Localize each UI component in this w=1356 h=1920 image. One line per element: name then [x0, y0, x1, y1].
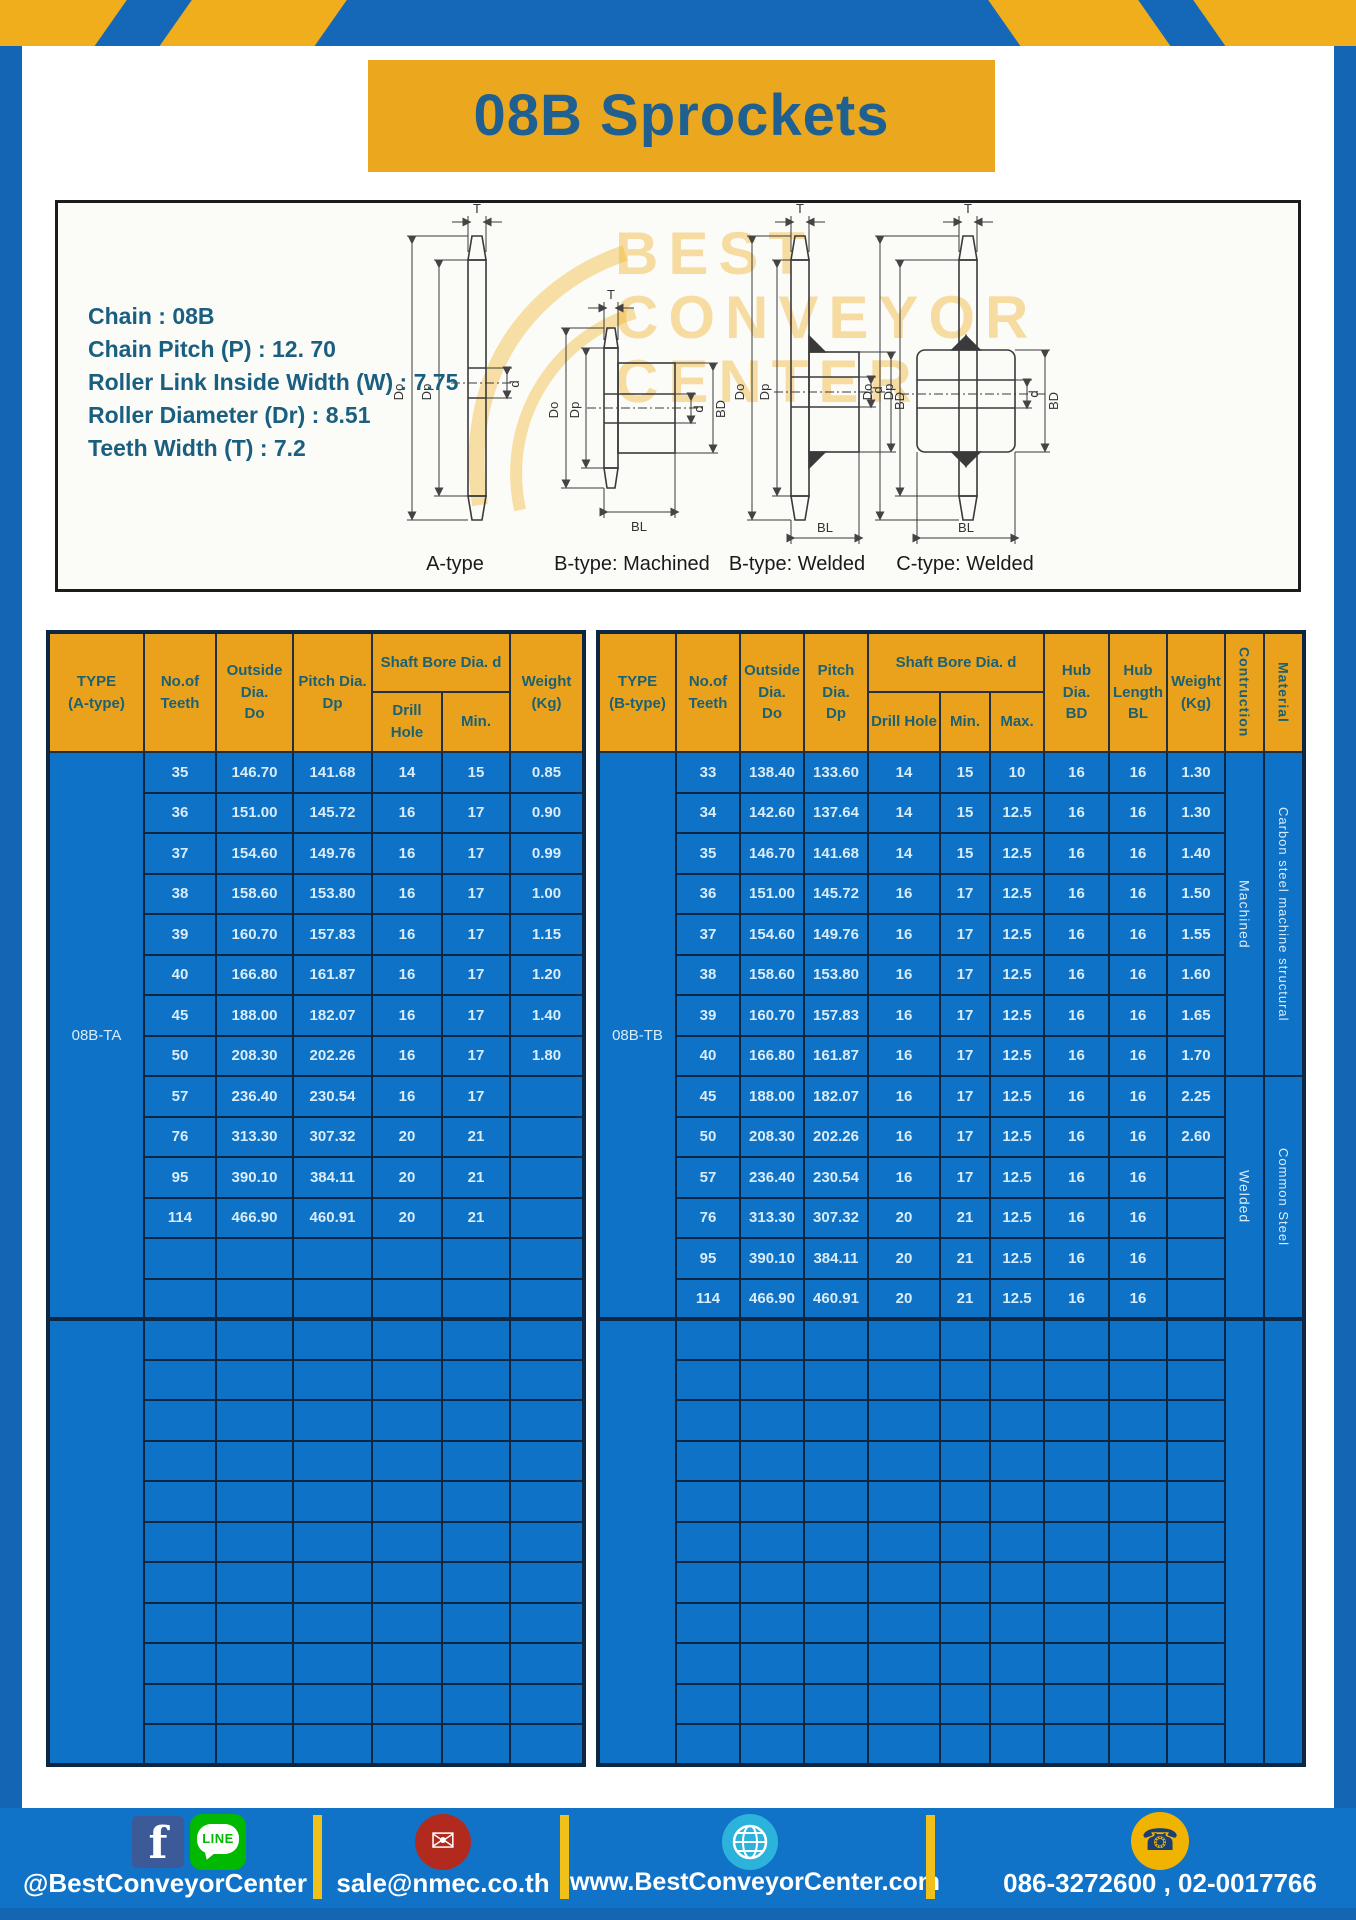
svg-text:Dp: Dp [881, 384, 896, 401]
type-cell-empty [48, 1319, 144, 1765]
material-cell-empty [1264, 1319, 1304, 1765]
table-cell [1044, 1400, 1109, 1441]
table-cell: 16 [1109, 914, 1167, 955]
table-cell [372, 1562, 442, 1603]
table-cell: 16 [868, 874, 940, 915]
table-cell: 1.40 [510, 995, 584, 1036]
table-cell [144, 1319, 216, 1360]
table-cell [868, 1562, 940, 1603]
table-cell [442, 1400, 510, 1441]
table-cell: 15 [940, 833, 990, 874]
footer-email: sale@nmec.co.th [320, 1868, 566, 1900]
svg-text:d: d [691, 405, 706, 412]
table-cell: 16 [372, 833, 442, 874]
footer-divider [560, 1815, 569, 1899]
line-bubble-label: LINE [197, 1824, 239, 1854]
table-cell: 40 [144, 955, 216, 996]
table-cell: 16 [1109, 1238, 1167, 1279]
table-cell [1044, 1360, 1109, 1401]
header-cell: Hub Dia. BD [1044, 632, 1109, 752]
footer-bar: f LINE @BestConveyorCenter ✉ sale@nmec.c… [0, 1808, 1356, 1908]
table-cell: 95 [676, 1238, 740, 1279]
table-cell [216, 1522, 293, 1563]
table-cell: 35 [676, 833, 740, 874]
svg-text:T: T [473, 201, 481, 216]
table-cell [676, 1400, 740, 1441]
table-cell: 307.32 [804, 1198, 868, 1239]
table-cell: 17 [940, 1117, 990, 1158]
table-cell: 16 [1044, 793, 1109, 834]
table-cell: 21 [940, 1198, 990, 1239]
table-cell [442, 1522, 510, 1563]
table-cell [216, 1319, 293, 1360]
table-cell: 202.26 [804, 1117, 868, 1158]
table-cell: 14 [868, 833, 940, 874]
top-band [0, 0, 1356, 46]
header-cell: Shaft Bore Dia. d [868, 632, 1044, 692]
header-cell: Weight (Kg) [1167, 632, 1225, 752]
table-cell: 161.87 [804, 1036, 868, 1077]
table-cell: 1.30 [1167, 793, 1225, 834]
table-cell [293, 1238, 372, 1279]
table-cell: 16 [1044, 995, 1109, 1036]
table-cell: 16 [372, 874, 442, 915]
table-cell [676, 1643, 740, 1684]
table-cell: 384.11 [293, 1157, 372, 1198]
table-cell: 182.07 [804, 1076, 868, 1117]
table-cell: 307.32 [293, 1117, 372, 1158]
table-cell [442, 1643, 510, 1684]
table-cell: 17 [442, 833, 510, 874]
table-cell [1167, 1400, 1225, 1441]
table-cell [940, 1522, 990, 1563]
table-cell: 157.83 [293, 914, 372, 955]
table-cell: 153.80 [804, 955, 868, 996]
table-cell [216, 1400, 293, 1441]
table-cell: 33 [676, 752, 740, 793]
table-cell [868, 1400, 940, 1441]
table-cell: 149.76 [804, 914, 868, 955]
table-cell: 12.5 [990, 1198, 1044, 1239]
table-cell: 460.91 [804, 1279, 868, 1320]
table-cell [442, 1441, 510, 1482]
table-cell: 17 [940, 955, 990, 996]
table-cell: 17 [940, 874, 990, 915]
svg-text:Do: Do [546, 402, 561, 419]
table-cell [372, 1360, 442, 1401]
table-cell [293, 1522, 372, 1563]
table-cell [868, 1684, 940, 1725]
table-cell: 0.90 [510, 793, 584, 834]
table-cell [442, 1562, 510, 1603]
svg-text:BL: BL [817, 520, 833, 535]
table-cell [293, 1481, 372, 1522]
table-cell: 45 [144, 995, 216, 1036]
globe-icon [722, 1814, 778, 1870]
table-cell [372, 1684, 442, 1725]
table-cell [868, 1319, 940, 1360]
table-cell: 16 [1044, 1238, 1109, 1279]
table-cell [144, 1562, 216, 1603]
table-cell [293, 1279, 372, 1320]
table-cell [990, 1603, 1044, 1644]
table-cell [372, 1603, 442, 1644]
table-cell: 17 [442, 1036, 510, 1077]
table-cell: 141.68 [804, 833, 868, 874]
footer-phones: 086-3272600 , 02-0017766 [985, 1868, 1335, 1900]
table-cell [1167, 1198, 1225, 1239]
table-cell [216, 1724, 293, 1765]
table-cell: 16 [372, 1076, 442, 1117]
table-cell: 12.5 [990, 955, 1044, 996]
table-cell [676, 1481, 740, 1522]
table-cell [990, 1724, 1044, 1765]
table-cell: 20 [372, 1157, 442, 1198]
table-cell: 12.5 [990, 833, 1044, 874]
header-cell: Shaft Bore Dia. d [372, 632, 510, 692]
header-cell: Min. [442, 692, 510, 752]
table-cell: 21 [442, 1117, 510, 1158]
table-cell [1109, 1643, 1167, 1684]
table-cell [1109, 1360, 1167, 1401]
table-cell: 146.70 [216, 752, 293, 793]
table-cell: 313.30 [740, 1198, 804, 1239]
svg-text:BD: BD [1046, 392, 1061, 410]
table-cell: 151.00 [740, 874, 804, 915]
table-cell: 137.64 [804, 793, 868, 834]
header-cell: Min. [940, 692, 990, 752]
table-cell: 21 [442, 1157, 510, 1198]
table-cell: 460.91 [293, 1198, 372, 1239]
page-canvas: 08B Sprockets BEST CONVEYOR CENTER [0, 0, 1356, 1920]
table-cell: 133.60 [804, 752, 868, 793]
table-cell: 16 [868, 955, 940, 996]
table-cell [144, 1360, 216, 1401]
table-cell [1167, 1360, 1225, 1401]
material-cell: Carbon steel machine structural [1264, 752, 1304, 1076]
table-cell [510, 1643, 584, 1684]
header-cell: Drill Hole [868, 692, 940, 752]
table-cell: 17 [940, 1036, 990, 1077]
table-cell: 114 [676, 1279, 740, 1320]
table-cell [868, 1441, 940, 1482]
table-cell: 45 [676, 1076, 740, 1117]
table-cell: 16 [1044, 1076, 1109, 1117]
table-cell [868, 1360, 940, 1401]
header-cell: Outside Dia. Do [740, 632, 804, 752]
table-cell: 182.07 [293, 995, 372, 1036]
table-cell: 16 [1044, 1117, 1109, 1158]
table-cell: 0.85 [510, 752, 584, 793]
table-cell [442, 1360, 510, 1401]
table-cell: 16 [1044, 752, 1109, 793]
table-cell [1109, 1400, 1167, 1441]
header-cell: Hub Length BL [1109, 632, 1167, 752]
table-cell [216, 1360, 293, 1401]
table-cell: 160.70 [216, 914, 293, 955]
table-cell: 17 [442, 793, 510, 834]
table-cell: 12.5 [990, 1117, 1044, 1158]
table-cell [740, 1360, 804, 1401]
table-cell: 1.55 [1167, 914, 1225, 955]
table-cell [510, 1360, 584, 1401]
table-cell [1044, 1643, 1109, 1684]
table-cell [676, 1724, 740, 1765]
construction-cell: Machined [1225, 752, 1264, 1076]
table-cell: 230.54 [293, 1076, 372, 1117]
table-cell: 1.50 [1167, 874, 1225, 915]
table-cell: 0.99 [510, 833, 584, 874]
table-cell [990, 1684, 1044, 1725]
table-cell: 12.5 [990, 1157, 1044, 1198]
line-icon: LINE [190, 1814, 246, 1870]
table-cell [293, 1603, 372, 1644]
table-cell: 16 [1044, 1157, 1109, 1198]
table-cell [442, 1238, 510, 1279]
table-cell: 16 [1109, 1076, 1167, 1117]
spec-line: Roller Diameter (Dr) : 8.51 [88, 399, 458, 432]
svg-text:T: T [964, 201, 972, 216]
table-cell [676, 1522, 740, 1563]
construction-cell: Welded [1225, 1076, 1264, 1319]
table-cell [144, 1603, 216, 1644]
phone-icon: ☎ [1131, 1812, 1189, 1870]
table-cell [740, 1724, 804, 1765]
table-cell [144, 1400, 216, 1441]
table-cell: 35 [144, 752, 216, 793]
material-cell: Common Steel [1264, 1076, 1304, 1319]
spec-line: Roller Link Inside Width (W) : 7.75 [88, 366, 458, 399]
table-cell [1109, 1441, 1167, 1482]
table-cell [442, 1603, 510, 1644]
table-cell [442, 1481, 510, 1522]
table-cell: 12.5 [990, 1238, 1044, 1279]
table-cell: 36 [144, 793, 216, 834]
table-cell [510, 1522, 584, 1563]
header-cell: Pitch Dia. Dp [293, 632, 372, 752]
svg-text:BD: BD [713, 400, 728, 418]
table-cell: 17 [940, 1157, 990, 1198]
table-cell: 149.76 [293, 833, 372, 874]
footer-website: www.BestConveyorCenter.com [570, 1868, 930, 1900]
svg-text:T: T [796, 201, 804, 216]
table-cell: 16 [1109, 752, 1167, 793]
table-cell: 16 [868, 914, 940, 955]
table-cell [510, 1319, 584, 1360]
table-cell: 151.00 [216, 793, 293, 834]
table-cell: 16 [372, 955, 442, 996]
sprocket-table-b-wrap: TYPE (B-type)No.of TeethOutside Dia. DoP… [596, 630, 1306, 1767]
table-cell [990, 1360, 1044, 1401]
stripe-icon [154, 0, 351, 46]
table-cell [293, 1562, 372, 1603]
table-cell [293, 1400, 372, 1441]
spec-line: Chain Pitch (P) : 12. 70 [88, 333, 458, 366]
table-cell [293, 1319, 372, 1360]
table-cell [1109, 1684, 1167, 1725]
table-cell: 95 [144, 1157, 216, 1198]
table-cell: 57 [676, 1157, 740, 1198]
table-cell: 17 [442, 995, 510, 1036]
table-cell: 166.80 [740, 1036, 804, 1077]
table-cell: 39 [676, 995, 740, 1036]
table-cell [216, 1481, 293, 1522]
table-cell [804, 1400, 868, 1441]
table-cell: 16 [1109, 1279, 1167, 1320]
table-cell: 188.00 [216, 995, 293, 1036]
table-cell [1044, 1724, 1109, 1765]
table-cell: 16 [1109, 955, 1167, 996]
table-cell [1167, 1562, 1225, 1603]
table-cell [804, 1441, 868, 1482]
table-cell: 145.72 [804, 874, 868, 915]
table-cell: 21 [940, 1279, 990, 1320]
table-cell: 158.60 [216, 874, 293, 915]
table-cell [442, 1279, 510, 1320]
table-cell: 15 [940, 793, 990, 834]
table-cell [940, 1481, 990, 1522]
table-cell: 76 [676, 1198, 740, 1239]
mail-icon: ✉ [415, 1814, 471, 1870]
table-cell [740, 1603, 804, 1644]
table-cell [1044, 1522, 1109, 1563]
svg-text:BL: BL [958, 520, 974, 535]
table-cell [804, 1603, 868, 1644]
table-cell: 208.30 [740, 1117, 804, 1158]
table-cell: 20 [372, 1198, 442, 1239]
table-cell: 20 [868, 1198, 940, 1239]
table-cell [940, 1441, 990, 1482]
svg-text:Dp: Dp [757, 384, 772, 401]
sprocket-table-b: TYPE (B-type)No.of TeethOutside Dia. DoP… [596, 630, 1306, 1767]
table-cell: 14 [868, 752, 940, 793]
table-cell [372, 1724, 442, 1765]
table-cell: 16 [868, 1117, 940, 1158]
table-cell: 15 [940, 752, 990, 793]
stripe-icon [1189, 0, 1356, 46]
svg-text:Do: Do [860, 384, 875, 401]
table-cell [216, 1684, 293, 1725]
table-cell [216, 1643, 293, 1684]
diagram-b-type-welded: T Do Dp d BD BL [732, 201, 907, 544]
table-cell [990, 1643, 1044, 1684]
table-cell [740, 1562, 804, 1603]
table-cell: 16 [372, 793, 442, 834]
table-cell: 16 [868, 1157, 940, 1198]
table-cell [1167, 1603, 1225, 1644]
table-cell: 384.11 [804, 1238, 868, 1279]
table-cell [510, 1076, 584, 1117]
table-cell: 16 [1109, 995, 1167, 1036]
table-cell: 154.60 [740, 914, 804, 955]
table-cell [940, 1360, 990, 1401]
table-cell: 16 [1109, 1117, 1167, 1158]
table-cell [216, 1603, 293, 1644]
header-cell: Pitch Dia. Dp [804, 632, 868, 752]
table-cell: 16 [372, 1036, 442, 1077]
table-cell [216, 1562, 293, 1603]
table-cell [804, 1724, 868, 1765]
table-cell: 160.70 [740, 995, 804, 1036]
table-cell [676, 1562, 740, 1603]
table-cell: 146.70 [740, 833, 804, 874]
table-cell: 390.10 [740, 1238, 804, 1279]
sprocket-table-a: TYPE (A-type)No.of TeethOutside Dia. DoP… [46, 630, 586, 1767]
svg-text:d: d [1026, 390, 1041, 397]
table-cell: 202.26 [293, 1036, 372, 1077]
table-cell [144, 1684, 216, 1725]
table-cell [510, 1684, 584, 1725]
table-cell: 161.87 [293, 955, 372, 996]
table-cell: 50 [144, 1036, 216, 1077]
table-cell: 16 [1044, 914, 1109, 955]
table-cell [293, 1724, 372, 1765]
table-cell [990, 1400, 1044, 1441]
table-cell [510, 1238, 584, 1279]
table-cell: 16 [1044, 1036, 1109, 1077]
table-cell: 466.90 [216, 1198, 293, 1239]
table-cell: 188.00 [740, 1076, 804, 1117]
table-cell [990, 1441, 1044, 1482]
table-cell: 16 [1109, 874, 1167, 915]
table-cell: 208.30 [216, 1036, 293, 1077]
table-cell [372, 1481, 442, 1522]
table-cell: 40 [676, 1036, 740, 1077]
table-cell [1044, 1684, 1109, 1725]
table-cell: 16 [1044, 833, 1109, 874]
table-cell [510, 1603, 584, 1644]
table-cell [216, 1441, 293, 1482]
table-cell: 10 [990, 752, 1044, 793]
header-cell: TYPE (B-type) [598, 632, 676, 752]
facebook-icon: f [132, 1816, 184, 1868]
header-cell: Drill Hole [372, 692, 442, 752]
table-cell [804, 1643, 868, 1684]
table-cell [510, 1157, 584, 1198]
table-cell [442, 1684, 510, 1725]
diagram-label-c-welded: C-type: Welded [845, 553, 1085, 576]
table-cell [1167, 1522, 1225, 1563]
table-cell [144, 1238, 216, 1279]
table-cell: 16 [1109, 1036, 1167, 1077]
table-cell: 1.20 [510, 955, 584, 996]
table-cell: 1.00 [510, 874, 584, 915]
table-cell [940, 1684, 990, 1725]
table-cell: 16 [1109, 1198, 1167, 1239]
table-cell [293, 1360, 372, 1401]
table-cell: 17 [940, 1076, 990, 1117]
table-cell [1109, 1603, 1167, 1644]
table-cell: 16 [868, 1076, 940, 1117]
header-cell: No.of Teeth [676, 632, 740, 752]
table-cell [940, 1724, 990, 1765]
table-cell: 17 [940, 914, 990, 955]
table-cell [1167, 1279, 1225, 1320]
table-cell: 15 [442, 752, 510, 793]
table-cell: 114 [144, 1198, 216, 1239]
header-cell: No.of Teeth [144, 632, 216, 752]
table-cell [1109, 1522, 1167, 1563]
table-cell: 36 [676, 874, 740, 915]
table-cell [293, 1441, 372, 1482]
table-cell [1109, 1724, 1167, 1765]
table-cell: 16 [868, 1036, 940, 1077]
type-cell: 08B-TB [598, 752, 676, 1319]
table-cell [1167, 1684, 1225, 1725]
table-cell: 16 [868, 995, 940, 1036]
table-cell: 390.10 [216, 1157, 293, 1198]
table-cell [1167, 1157, 1225, 1198]
